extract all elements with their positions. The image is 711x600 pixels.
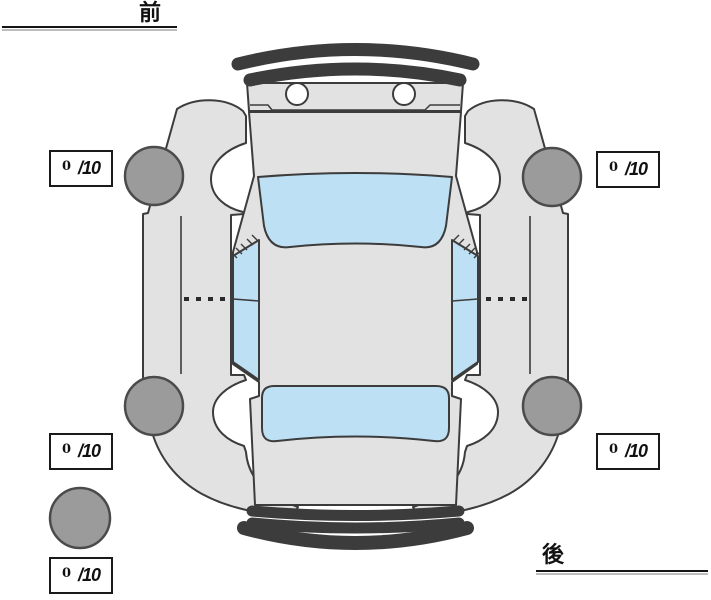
tire-rear-right	[523, 377, 581, 435]
windshield	[258, 173, 452, 247]
score-max: /10	[625, 159, 647, 180]
headlight-left	[286, 83, 308, 105]
score-max: /10	[78, 565, 100, 586]
score-value: 0	[609, 442, 618, 457]
front-panel	[247, 83, 463, 111]
car-top-view	[0, 0, 711, 600]
tire-front-left	[125, 147, 183, 205]
tread-score-front-right: 0/10	[596, 151, 660, 188]
score-value: 0	[62, 159, 71, 174]
rear-window	[262, 386, 449, 441]
score-max: /10	[78, 441, 100, 462]
side-window-right	[452, 240, 478, 380]
tread-score-front-left: 0/10	[49, 150, 113, 187]
spare-tire	[50, 488, 110, 548]
tread-score-spare: 0/10	[49, 557, 113, 594]
score-max: /10	[78, 158, 100, 179]
headlight-right	[393, 83, 415, 105]
car-body	[233, 112, 477, 505]
tire-rear-left	[125, 377, 183, 435]
tire-front-right	[523, 148, 581, 206]
tread-score-rear-left: 0/10	[49, 433, 113, 470]
score-value: 0	[62, 442, 71, 457]
tread-score-rear-right: 0/10	[596, 433, 660, 470]
score-value: 0	[609, 160, 618, 175]
score-max: /10	[625, 441, 647, 462]
side-window-left	[233, 240, 259, 380]
car-inspection-diagram: 前 後	[0, 0, 711, 600]
score-value: 0	[62, 566, 71, 581]
